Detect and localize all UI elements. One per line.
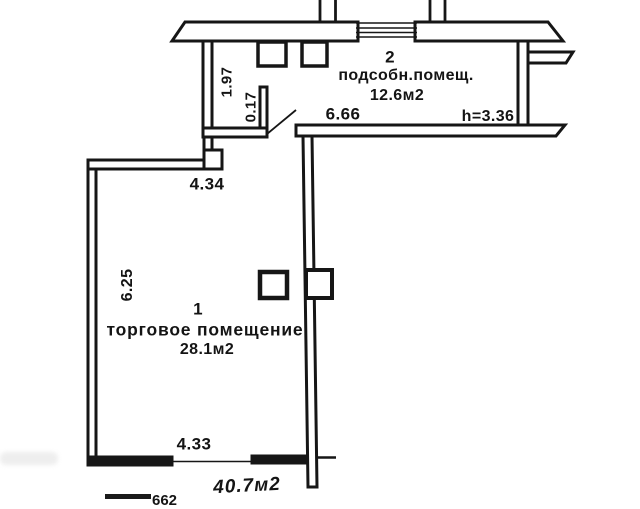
room2-name: подсобн.помещ. [338, 68, 473, 84]
door-leaf-line [267, 110, 296, 134]
room2-left-wall [203, 40, 212, 131]
room1-bottom-wall-left [88, 457, 172, 465]
room1-number: 1 [193, 301, 203, 318]
room2-number: 2 [385, 49, 395, 66]
window-symbol [356, 23, 417, 37]
room1-column-box [260, 272, 287, 298]
dim-room2-width: 6.66 [326, 106, 361, 123]
dim-room1-top-width: 4.34 [190, 176, 225, 193]
center-partition-wall [303, 136, 317, 487]
room2-vent-box-right [302, 42, 327, 66]
room1-top-wall [88, 160, 214, 169]
dim-room2-left-wall: 1.97 [220, 67, 235, 98]
dim-room1-left-height: 6.25 [120, 269, 136, 302]
room2-bottom-wall [296, 125, 565, 136]
dim-room1-bottom-width: 4.33 [177, 436, 212, 453]
room2-area: 12.6м2 [370, 88, 424, 104]
dim-wall-offset: 0.17 [244, 92, 259, 123]
room1-top-wall-end-block [204, 150, 222, 169]
ceiling-height-note: h=3.36 [462, 109, 515, 125]
floor-plan: 2 подсобн.помещ. 12.6м2 6.66 h=3.36 1.97… [0, 0, 640, 498]
clipped-stroke [105, 494, 151, 499]
room2-vent-box-left [258, 42, 286, 66]
clipped-bottom-text: 662 [152, 492, 177, 509]
upper-wall-stub-lines [320, 0, 445, 22]
scan-smudge [0, 452, 58, 465]
floor-plan-linework [0, 0, 640, 498]
room1-name: торговое помещение [107, 321, 304, 339]
top-wall-left [172, 22, 358, 41]
room1-area: 28.1м2 [180, 342, 234, 358]
room1-bottom-wall-right [252, 456, 314, 463]
total-area-note: 40.7м2 [213, 475, 282, 498]
room1-wall-box [306, 270, 332, 298]
top-wall-right [415, 22, 563, 41]
right-wall-stub [528, 52, 573, 63]
room1-left-wall [88, 160, 96, 465]
room2-door-stub-wall [260, 87, 267, 132]
